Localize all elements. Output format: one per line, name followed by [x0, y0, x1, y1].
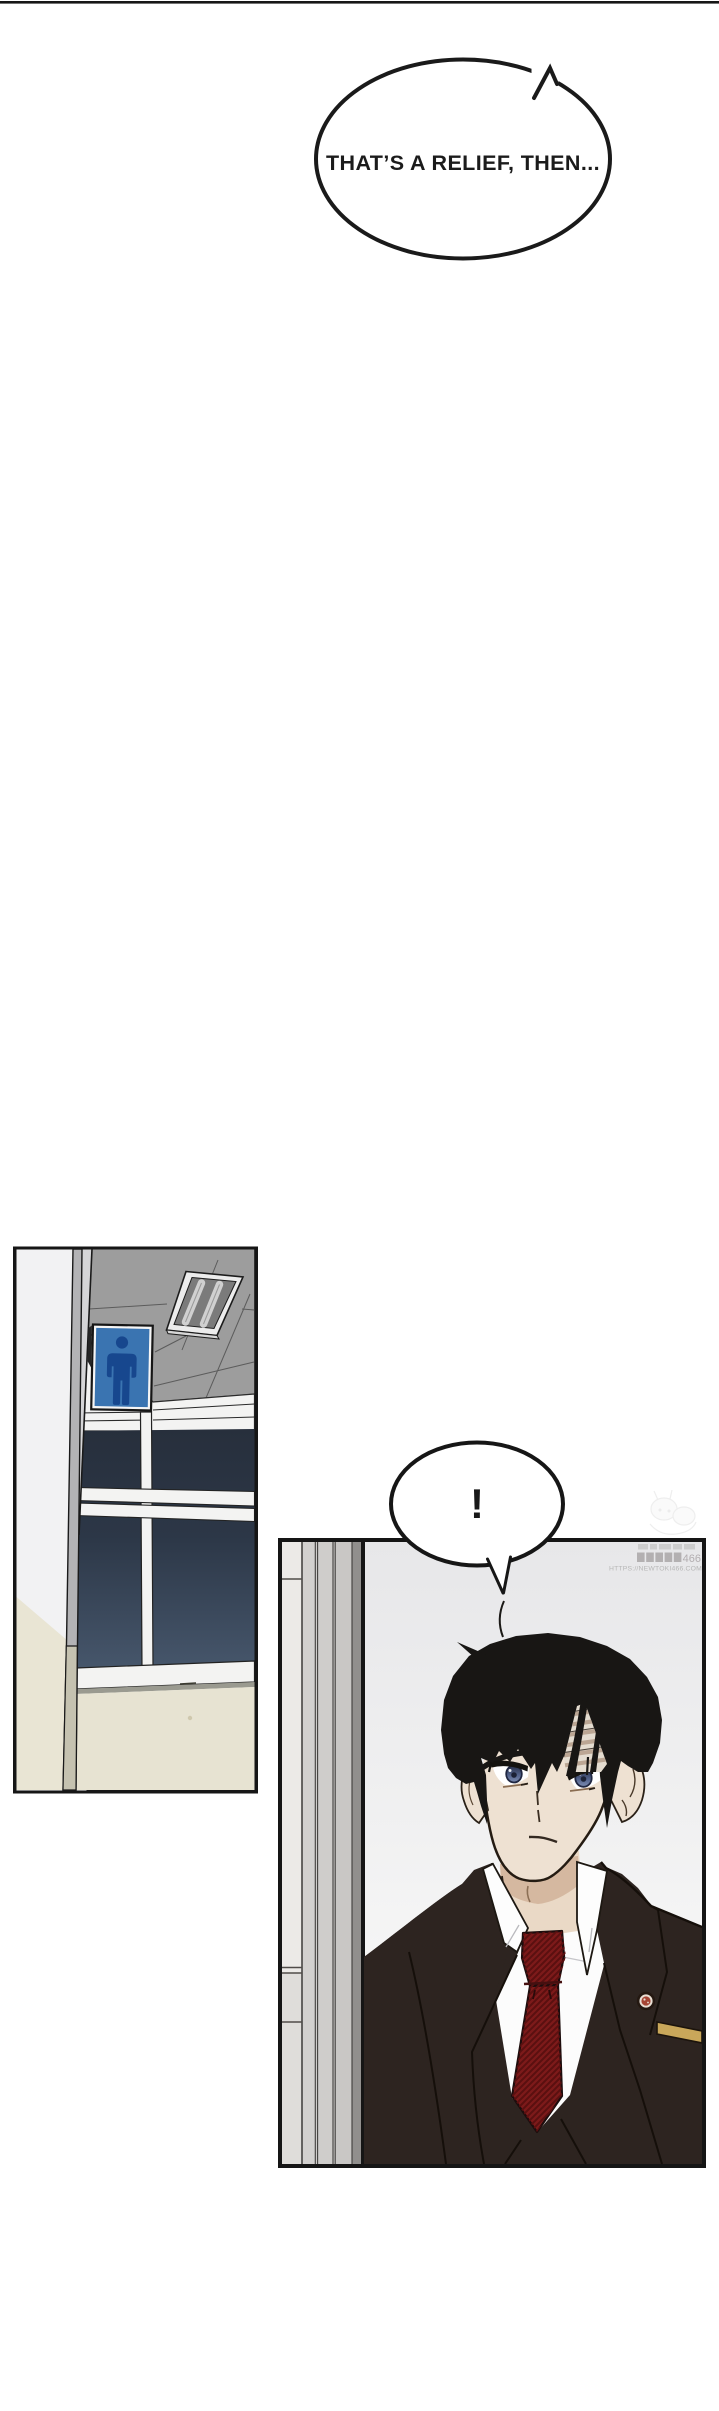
svg-text:466: 466 — [683, 1553, 701, 1565]
svg-text:THAT’S A RELIEF, THEN...: THAT’S A RELIEF, THEN... — [326, 151, 600, 175]
svg-text:HTTPS://NEWTOKI466.COM: HTTPS://NEWTOKI466.COM — [609, 1566, 702, 1573]
svg-text:!: ! — [470, 1480, 484, 1527]
